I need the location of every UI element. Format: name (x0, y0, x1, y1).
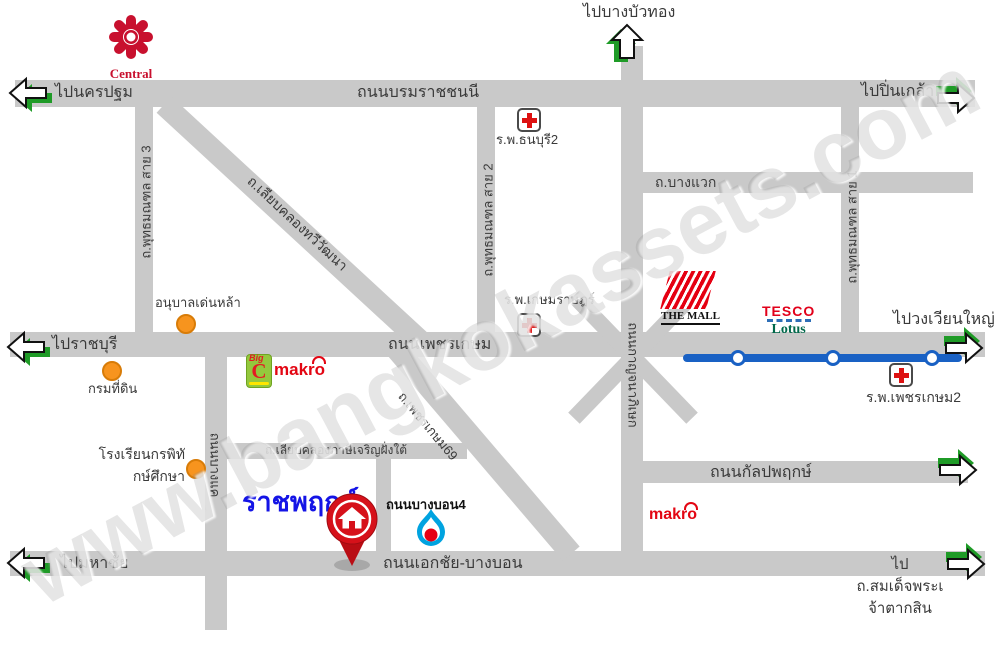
transit-line (683, 354, 962, 362)
label-kornpitack-school-line1: โรงเรียนกรพิทั (95, 444, 185, 466)
the-mall-wordmark: THE MALL (661, 310, 720, 325)
label-road-bangwaek: ถ.บางแวก (655, 175, 716, 190)
road-borommaratchachonnani (15, 80, 975, 107)
road-kanchanaphisek (621, 46, 643, 556)
central-flower-icon (107, 13, 155, 61)
lotus-wordmark: Lotus (762, 322, 815, 338)
hospital-cross-kasemrat-icon (517, 313, 541, 337)
label-to-taksin-line1: ไป (840, 554, 960, 576)
arrow-up-bang-bua-thong-icon (602, 22, 650, 64)
arrow-left-nakhon-pathom-icon (8, 76, 52, 116)
label-to-taksin-line3: จ้าตากสิน (840, 598, 960, 620)
big-c-letter: C (247, 359, 271, 384)
makro-logo-kalapapruek: makro (649, 506, 697, 524)
label-road-liab-khlong-phasi-charoen: ถ.เลียบคลองภาษีเจริญฝั่งใต้ (265, 444, 407, 457)
tesco-wordmark: TESCO (762, 303, 815, 319)
label-anuban-denla: อนุบาลเด่นหล้า (155, 296, 241, 310)
label-road-phetkasem: ถนนเพชรเกษม (388, 336, 491, 354)
arrow-right-taksin-icon (946, 542, 990, 582)
big-c-banner (249, 382, 269, 385)
label-kasemrat-hospital: ร.พ.เกษมราษฎร์ (504, 293, 595, 307)
label-kornpitack-school: โรงเรียนกรพิทั กษ์ศึกษา (95, 444, 185, 488)
poi-kornpitack-school-icon (186, 459, 206, 479)
label-road-liab-khlong-thawiwatthana: ถ.เลียบคลองทวีวัฒนา (242, 171, 353, 276)
map-canvas: ไปนครปฐม ถนนบรมราชชนนี ไปบางบัวทอง ไปปิ่… (0, 0, 1000, 648)
poi-anuban-denla-icon (176, 314, 196, 334)
arrow-right-wongwian-yai-icon (944, 326, 988, 366)
label-land-department: กรมที่ดิน (88, 382, 137, 396)
label-phetkasem2-hospital: ร.พ.เพชรเกษม2 (866, 390, 961, 405)
the-mall-stripes-icon (660, 271, 715, 309)
transit-station-2 (825, 350, 841, 366)
label-to-maha-chai: ไปมหาชัย (60, 555, 129, 573)
label-to-taksin: ไป ถ.สมเด็จพระเ จ้าตากสิน (840, 554, 960, 619)
label-to-taksin-line2: ถ.สมเด็จพระเ (840, 576, 960, 598)
label-road-borommaratchachonnani: ถนนบรมราชชนนี (357, 84, 479, 102)
label-to-nakhon-pathom: ไปนครปฐม (55, 84, 133, 102)
transit-station-3 (924, 350, 940, 366)
makro-logo-phetkasem: makro (274, 360, 325, 380)
tesco-lotus-logo: TESCO Lotus (762, 303, 815, 338)
central-wordmark: Central (103, 66, 159, 82)
label-kornpitack-school-line2: กษ์ศึกษา (95, 466, 185, 488)
label-road-phutthamonthon-sai2: ถ.พุทธมณฑล สาย 2 (478, 163, 499, 276)
label-to-bang-bua-thong: ไปบางบัวทอง (583, 4, 675, 22)
hospital-cross-phetkasem2-icon (889, 363, 913, 387)
location-pin-icon (322, 492, 382, 574)
poi-land-department-icon (102, 361, 122, 381)
arrow-right-pin-klao-icon (936, 76, 980, 116)
label-thonburi2-hospital: ร.พ.ธนบุรี2 (496, 133, 558, 147)
label-road-bangkhae: ถนนบางแค (205, 433, 226, 498)
label-road-phutthamonthon-sai1: ถ.พุทธมณฑล สาย 1 (842, 170, 863, 283)
big-c-logo: Big C (246, 354, 272, 388)
makro-arc-icon (312, 356, 326, 364)
label-road-bangbon4: ถนนบางบอน4 (386, 494, 466, 515)
label-road-phutthamonthon-sai3: ถ.พุทธมณฑล สาย 3 (136, 145, 157, 258)
label-to-ratchaburi: ไปราชบุรี (52, 336, 117, 354)
label-road-kalapapruek: ถนนกัลปพฤกษ์ (710, 464, 812, 482)
label-road-kanchanaphisek: ถนนกาญจนาภิเษก (623, 322, 644, 427)
transit-station-1 (730, 350, 746, 366)
arrow-left-maha-chai-icon (6, 546, 50, 586)
label-road-ekkachai-bangbon: ถนนเอกชัย-บางบอน (383, 555, 523, 573)
hospital-cross-thonburi2-icon (517, 108, 541, 132)
makro-arc-icon-2 (684, 502, 698, 510)
label-to-pin-klao: ไปปิ่นเกล้า (861, 83, 934, 101)
arrow-left-ratchaburi-icon (6, 330, 50, 370)
central-logo: Central (103, 13, 159, 82)
arrow-right-kalapapruek-icon (938, 448, 982, 488)
